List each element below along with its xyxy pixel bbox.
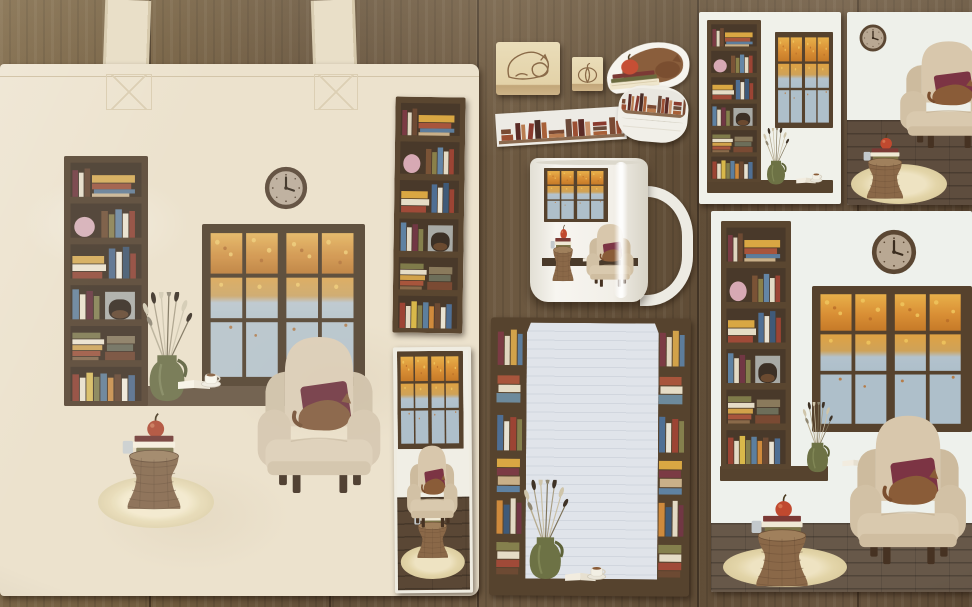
flatlay-photo bbox=[0, 0, 972, 607]
printC-table bbox=[745, 493, 819, 591]
mug-armchair-print bbox=[582, 222, 638, 288]
art-print-cropped bbox=[847, 12, 972, 205]
washi-books-pattern bbox=[497, 109, 624, 145]
washi-tape-strip bbox=[495, 106, 627, 147]
printA-vase bbox=[761, 128, 791, 186]
tote-handle-left bbox=[103, 0, 151, 73]
pumpkin-outline-engraving bbox=[576, 61, 599, 84]
mug-window-print bbox=[544, 168, 608, 222]
printC-armchair bbox=[839, 411, 972, 567]
wall-clock-print bbox=[264, 166, 308, 210]
bookmark-armchair bbox=[402, 443, 463, 530]
printA-window bbox=[775, 32, 833, 128]
bookmark-window bbox=[397, 351, 464, 450]
roll-books-pattern bbox=[621, 86, 687, 118]
washi-tape-roll bbox=[616, 83, 691, 145]
mug-body bbox=[530, 158, 648, 302]
notepad-teacup-book bbox=[563, 562, 607, 582]
roll-edge-line bbox=[622, 117, 684, 123]
printC-bookshelf bbox=[721, 221, 791, 469]
bookshelf-print bbox=[64, 156, 148, 406]
ceramic-mug bbox=[528, 156, 688, 306]
art-print-small bbox=[699, 12, 841, 204]
armchair-bookmark bbox=[393, 347, 473, 594]
printC-vase bbox=[800, 402, 835, 474]
armchair-print bbox=[246, 332, 392, 496]
wicker-table-print bbox=[116, 412, 192, 514]
teacup-book-print bbox=[176, 368, 222, 390]
printA-teacup-book bbox=[795, 170, 823, 184]
mug-basket-print bbox=[548, 224, 578, 284]
bookshelf-bookmark bbox=[392, 97, 465, 334]
printB-armchair bbox=[891, 38, 972, 150]
cat-outline-engraving bbox=[504, 47, 552, 85]
mug-glare bbox=[614, 162, 628, 298]
rubber-stamp-cat bbox=[496, 42, 560, 95]
roll-edge-line-2 bbox=[623, 125, 681, 131]
art-print-large bbox=[711, 211, 972, 592]
printB-clock bbox=[859, 24, 887, 52]
notepad bbox=[489, 317, 691, 596]
rubber-stamp-pumpkin bbox=[572, 57, 603, 91]
roll-printed-band bbox=[621, 86, 687, 118]
tote-handle-right bbox=[311, 0, 357, 73]
notepad-books-right bbox=[657, 326, 685, 578]
printC-clock bbox=[871, 229, 917, 275]
printA-bookshelf bbox=[707, 20, 761, 182]
